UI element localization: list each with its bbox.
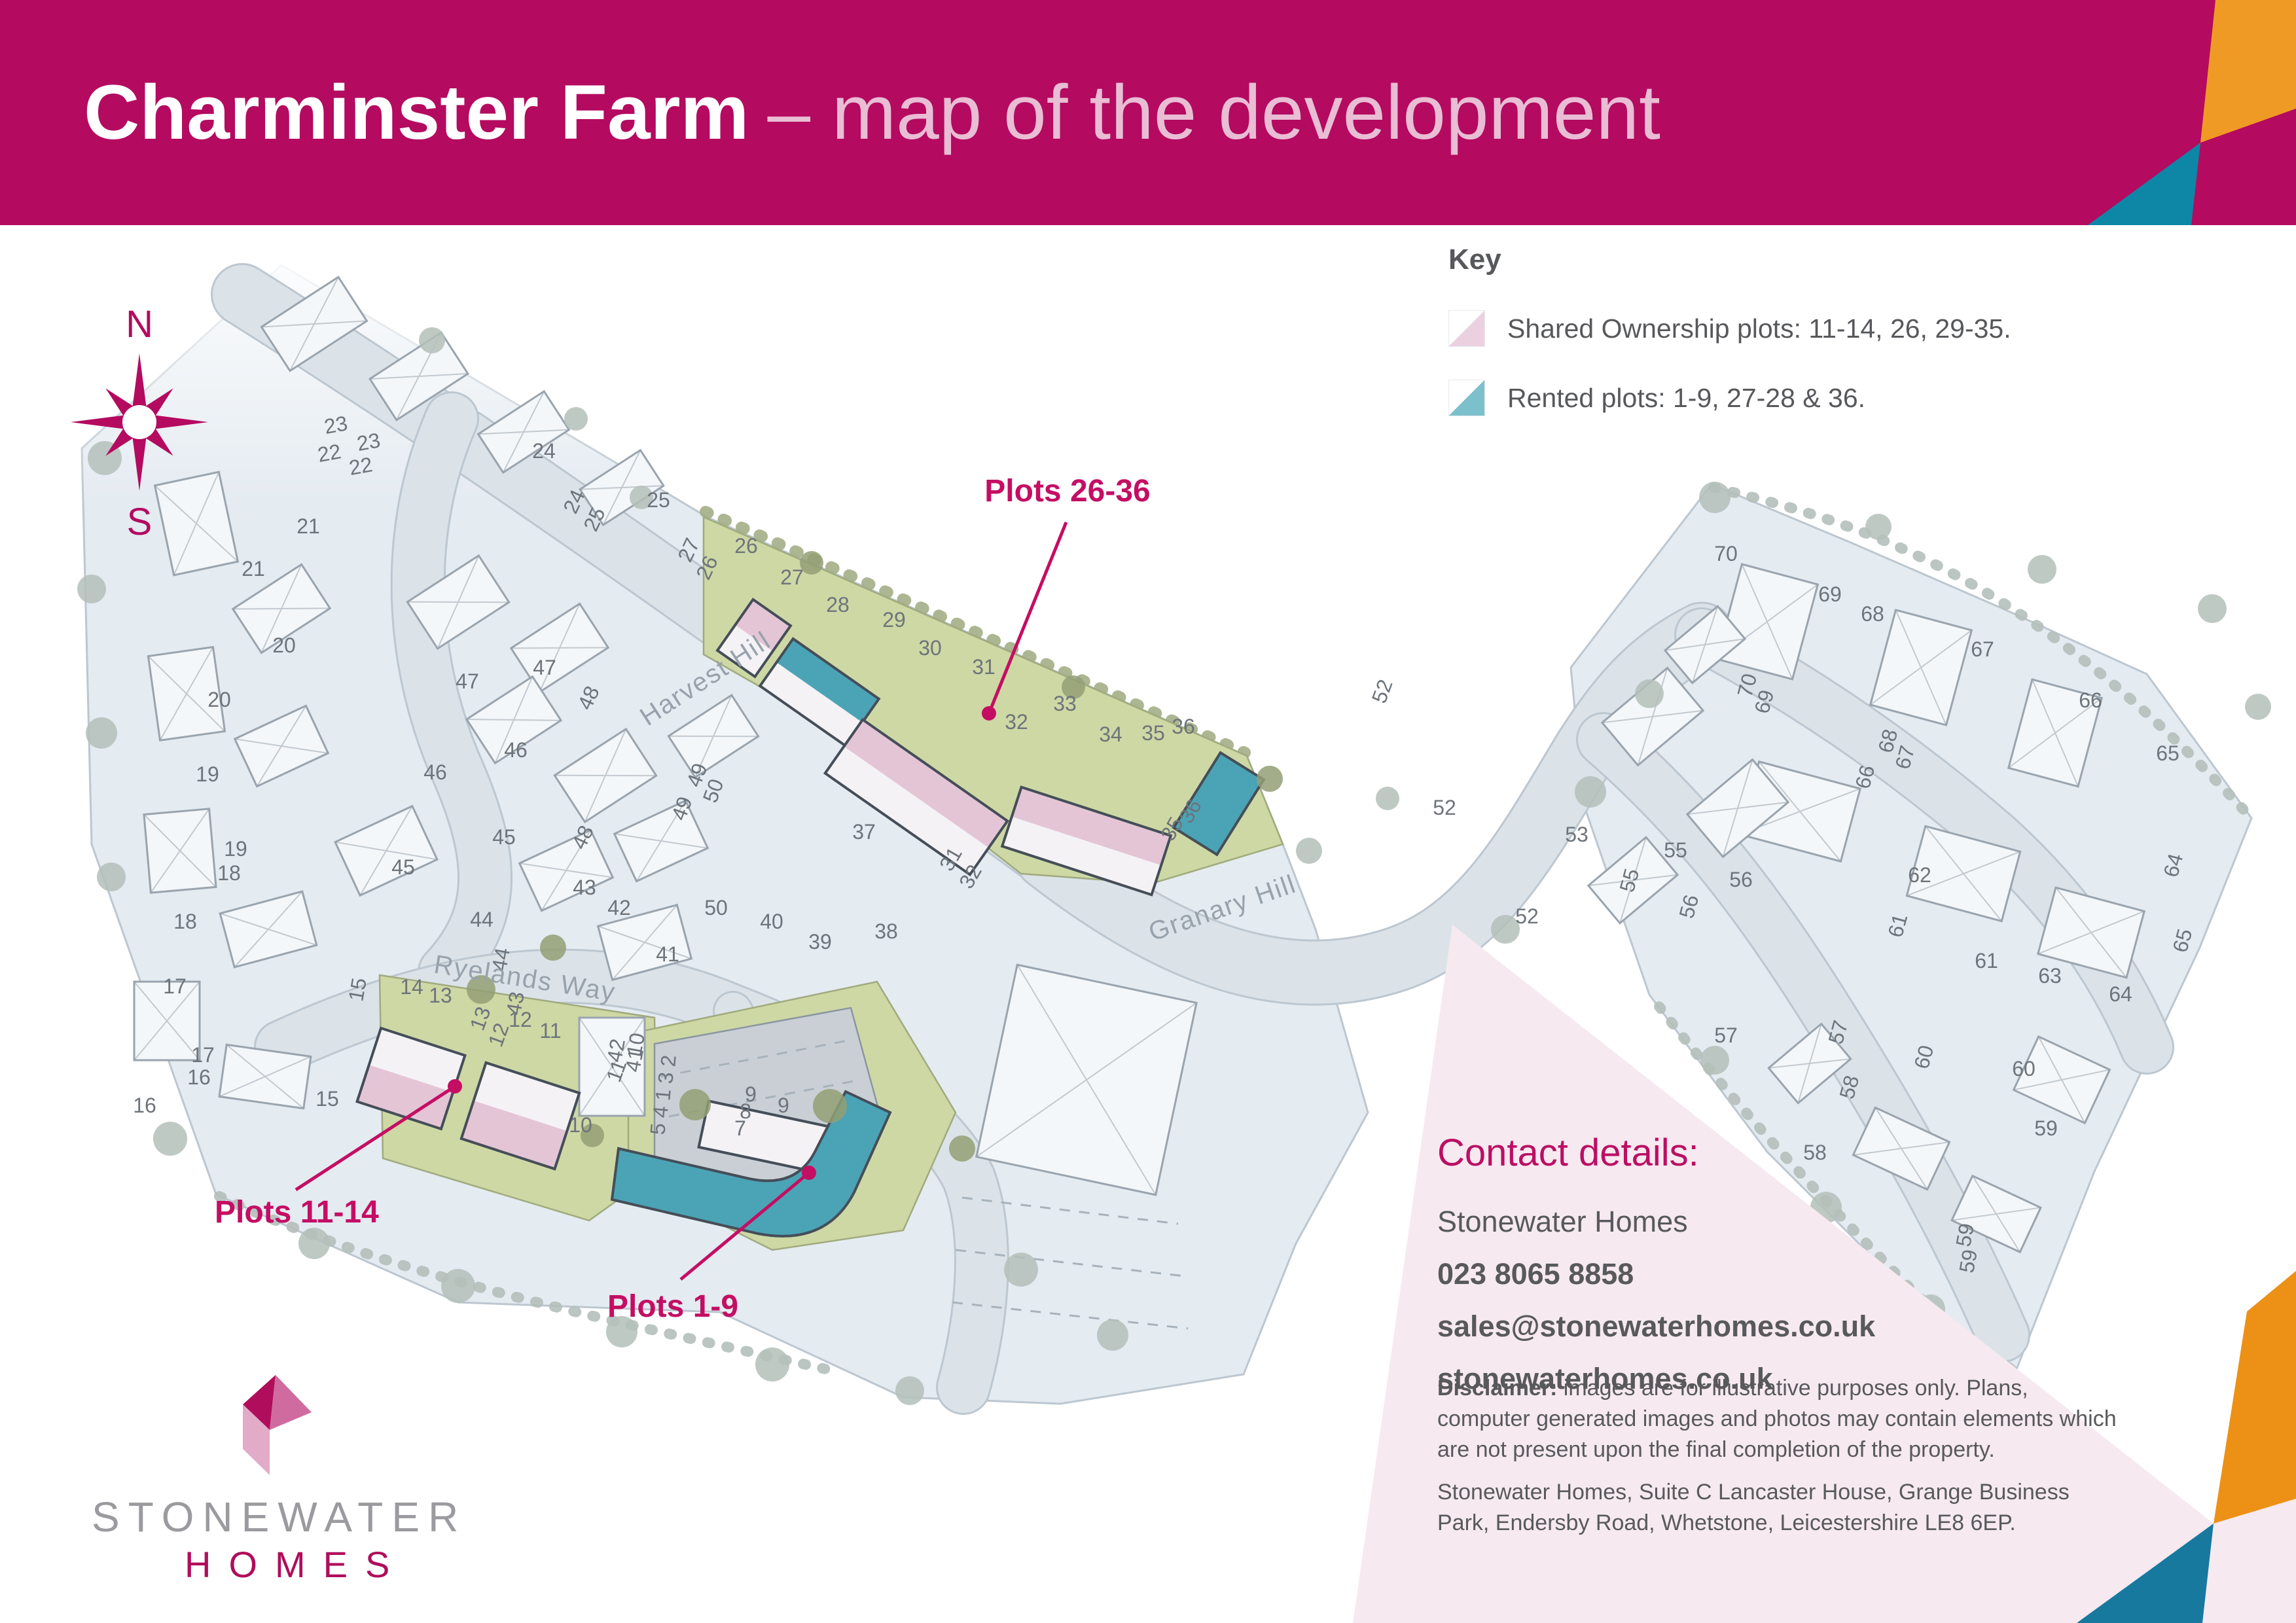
map-tree [1449, 961, 1483, 995]
building-outline [825, 720, 1008, 875]
road-casing [733, 1011, 755, 1113]
map-tree [564, 407, 588, 431]
plot-number: 24 [532, 439, 556, 463]
plot-number: 48 [567, 822, 598, 853]
building-part [461, 1101, 567, 1169]
map-tree [1257, 766, 1283, 792]
map-tree [1004, 1253, 1038, 1287]
house-footprint [235, 705, 329, 786]
hedgerow [706, 512, 1245, 753]
plot-number: 8 [740, 1099, 751, 1123]
plot-number: 2 [656, 1054, 680, 1068]
plot-number: 19 [224, 837, 247, 861]
plot-number: 48 [573, 683, 604, 713]
house-roof-lines [144, 809, 216, 893]
map-house [262, 277, 367, 370]
map-tree [1062, 675, 1085, 699]
callout-line [296, 1086, 455, 1190]
plot-number: 59 [2034, 1116, 2058, 1140]
map-house [2009, 679, 2102, 787]
house-roof-lines [1602, 668, 1703, 766]
plot-number: 5 [645, 1122, 670, 1136]
map-tree [1635, 679, 1664, 708]
plot-number: 20 [272, 633, 296, 657]
plot-number: 55 [1615, 866, 1643, 895]
disclaimer-text: Disclaimer: images are for illustrative … [1437, 1373, 2118, 1465]
house-roof-lines [615, 800, 708, 881]
page-title-bold: Charminster Farm [84, 69, 749, 156]
house-footprint [1740, 762, 1860, 861]
building-part [1174, 753, 1264, 855]
map-house [134, 982, 200, 1060]
plot-number: 28 [826, 593, 850, 616]
house-roof-lines [579, 1018, 645, 1116]
map-tree [2028, 555, 2056, 584]
plot-number: 68 [1873, 726, 1902, 755]
road-casing [1047, 635, 1702, 972]
garden-area [704, 517, 1283, 883]
house-footprint [467, 677, 561, 763]
road-casing [1702, 635, 2147, 1047]
map-tree [77, 575, 106, 603]
house-roof-lines [1768, 1024, 1850, 1103]
map-house [580, 450, 664, 525]
street-label: Granary Hill [1145, 870, 1300, 947]
house-roof-lines [148, 647, 224, 741]
road [242, 294, 1047, 857]
building-part [1012, 787, 1171, 865]
plot-number: 13 [465, 1003, 495, 1033]
plot-number: 21 [296, 514, 320, 538]
house-roof-lines [219, 1044, 311, 1108]
plot-number: 58 [1835, 1073, 1863, 1101]
map-tree [800, 551, 823, 575]
plot-number: 22 [315, 439, 342, 467]
house-roof-lines [155, 472, 238, 575]
house-roof-lines [977, 965, 1196, 1195]
plot-number: 31 [972, 655, 996, 679]
map-house [615, 800, 708, 881]
plot-number: 31 [935, 843, 967, 875]
plot-number: 23 [322, 411, 349, 438]
plot-number: 61 [1975, 949, 1998, 972]
house-roof-lines [134, 982, 200, 1060]
page-title: Charminster Farm– map of the development [0, 68, 1660, 157]
parking-courtyard [655, 1008, 880, 1207]
plot-number: 59 [1954, 1247, 1982, 1274]
house-roof-lines [335, 806, 437, 896]
map-tree [1491, 915, 1520, 944]
building-part [699, 1101, 859, 1179]
plot-number: 39 [808, 930, 832, 954]
parking-bay-lines [956, 1250, 1185, 1276]
map-house [1740, 762, 1860, 861]
plot-number: 49 [667, 793, 697, 823]
pink-triangle-right [2202, 1497, 2296, 1623]
contact-phone: 023 8065 8858 [1437, 1257, 1875, 1291]
house-footprint [579, 1018, 645, 1116]
plot-number: 9 [745, 1082, 757, 1106]
house-footprint [370, 332, 468, 420]
map-tree [467, 975, 495, 1004]
plot-number: 35 [1156, 813, 1188, 845]
building-pink [717, 599, 791, 677]
house-roof-lines [2038, 887, 2144, 978]
plot-number: 42 [602, 1037, 630, 1063]
house-roof-lines [235, 705, 329, 786]
house-roof-lines [1907, 826, 2020, 921]
plot-number: 34 [1099, 722, 1122, 746]
site-area [82, 265, 1368, 1404]
plot-number: 69 [1818, 582, 1842, 606]
building-part [1174, 753, 1264, 855]
building-part [760, 639, 879, 746]
plot-number: 52 [1367, 676, 1397, 706]
building-white [699, 1101, 859, 1179]
key-heading: Key [1448, 243, 2011, 276]
plot-number: 67 [1971, 637, 1994, 661]
contact-email-link[interactable]: sales@stonewaterhomes.co.uk [1437, 1310, 1875, 1344]
plot-number: 47 [456, 669, 479, 693]
building-outline [699, 1101, 859, 1179]
house-footprint [2038, 887, 2144, 978]
map-tree [813, 1089, 847, 1123]
house-roof-lines [598, 905, 692, 980]
house-roof-lines [262, 277, 367, 370]
plot-number: 26 [691, 552, 723, 583]
header-banner: Charminster Farm– map of the development [0, 0, 2296, 225]
plot-number: 16 [187, 1065, 211, 1089]
house-footprint [598, 905, 692, 980]
logo-mark-light [243, 1404, 270, 1475]
orange-triangle-bottom [2214, 1271, 2296, 1524]
map-tree [86, 717, 117, 749]
building-teal-plots-1-9 [612, 1092, 890, 1236]
map-tree [88, 441, 122, 475]
plot-number: 66 [1850, 762, 1879, 791]
plot-number: 29 [882, 608, 906, 632]
house-roof-lines [1588, 837, 1677, 923]
map-tree [1916, 1294, 1945, 1323]
building-outline [1174, 753, 1264, 855]
building-outline [357, 1028, 465, 1129]
map-tree [1575, 776, 1606, 808]
plot-number: 37 [852, 820, 876, 844]
building-outline [461, 1063, 579, 1169]
map-tree [1097, 1319, 1128, 1351]
map-tree [540, 935, 566, 961]
house-footprint [554, 729, 656, 822]
plot-number: 10 [569, 1113, 592, 1137]
building-pink [1002, 787, 1171, 895]
plot-number: 10 [622, 1031, 649, 1058]
map-house [219, 1044, 311, 1108]
house-footprint [668, 695, 758, 777]
plot-number: 27 [780, 565, 804, 589]
house-roof-lines [668, 695, 758, 777]
map-house [2038, 887, 2144, 978]
key-row-shared-ownership: Shared Ownership plots: 11-14, 26, 29-35… [1448, 310, 2011, 347]
map-house [1717, 564, 1818, 679]
plot-number: 61 [1883, 911, 1912, 940]
house-footprint [1871, 610, 1972, 725]
map-house [1687, 760, 1788, 857]
plot-number: 59 [1951, 1221, 1979, 1248]
house-roof-lines [233, 564, 330, 652]
house-footprint [615, 800, 708, 881]
map-house [977, 965, 1196, 1195]
plot-number: 63 [2038, 964, 2062, 988]
house-footprint [1588, 837, 1677, 923]
house-footprint [407, 556, 509, 649]
house-footprint [478, 391, 569, 473]
plot-callout-label: Plots 26-36 [984, 474, 1150, 508]
road [1047, 635, 1702, 972]
plot-number: 24 [558, 486, 590, 517]
house-footprint [148, 647, 224, 741]
map-tree [581, 1124, 604, 1147]
plot-number: 9 [778, 1094, 789, 1117]
house-footprint [219, 1044, 311, 1108]
parking-bay-lines [669, 1081, 854, 1116]
house-footprint [1717, 564, 1818, 679]
plot-number: 57 [1714, 1024, 1738, 1047]
map-house [1602, 668, 1703, 766]
plot-number: 41 [656, 942, 679, 966]
plot-number: 50 [698, 776, 728, 806]
house-footprint [220, 891, 317, 967]
map-house [220, 891, 317, 967]
plot-number: 16 [133, 1094, 156, 1117]
building-pink [461, 1063, 579, 1169]
plot-number: 44 [487, 946, 514, 972]
map-tree [606, 1316, 637, 1347]
contact-company: Stonewater Homes [1437, 1205, 1875, 1239]
map-tree [419, 327, 445, 353]
map-tree [1865, 514, 1892, 540]
logo-text-homes: HOMES [185, 1544, 407, 1585]
compass-star-icon [71, 353, 208, 491]
garden-area [380, 975, 658, 1221]
compass-north-label: N [126, 303, 153, 346]
map-house [554, 729, 656, 822]
road [281, 976, 982, 1387]
map-tree [97, 863, 126, 891]
house-footprint [977, 965, 1196, 1195]
house-roof-lines [554, 729, 656, 822]
plot-number: 14 [400, 975, 423, 999]
logo-mark-mid [270, 1375, 312, 1430]
map-house [2014, 1037, 2110, 1123]
building-part [699, 1101, 859, 1179]
house-footprint [1907, 826, 2020, 921]
house-roof-lines [1952, 1176, 2041, 1253]
map-tree [441, 1269, 475, 1303]
plot-number: 35 [1141, 721, 1165, 745]
plot-number: 27 [673, 535, 704, 565]
map-tree [153, 1122, 187, 1156]
plot-number: 66 [2079, 688, 2102, 712]
house-roof-lines [1871, 610, 1972, 725]
plot-number: 46 [423, 760, 447, 784]
plot-number: 50 [704, 896, 728, 919]
map-house [467, 677, 561, 763]
plot-number: 7 [734, 1116, 746, 1140]
map-house [1952, 1176, 2041, 1253]
map-house [1768, 1024, 1850, 1103]
callout-dot [448, 1079, 462, 1094]
plot-number: 65 [2168, 926, 2197, 955]
map-house [1665, 606, 1745, 683]
plot-number: 64 [2109, 982, 2132, 1006]
plot-number: 45 [391, 855, 415, 879]
house-roof-lines [478, 391, 569, 473]
map-house [370, 332, 468, 420]
callout-line [989, 522, 1066, 713]
map-tree [298, 1228, 330, 1259]
plot-number: 67 [1890, 743, 1919, 772]
plot-number: 33 [1053, 692, 1077, 715]
plot-number: 46 [504, 738, 528, 762]
house-roof-lines [2009, 679, 2102, 787]
plot-number: 22 [347, 452, 374, 480]
key-row-rented: Rented plots: 1-9, 27-28 & 36. [1448, 380, 2011, 416]
key-label-rented: Rented plots: 1-9, 27-28 & 36. [1507, 383, 1865, 414]
map-house [155, 472, 238, 575]
map-tree [2198, 594, 2227, 623]
plot-number: 15 [315, 1087, 339, 1111]
map-tree [755, 1347, 789, 1382]
plot-number: 19 [196, 762, 219, 786]
map-tree [1376, 787, 1399, 810]
plot-number: 60 [2012, 1057, 2036, 1080]
house-footprint [580, 450, 664, 525]
building-part [357, 1028, 465, 1129]
house-footprint [511, 603, 608, 692]
building-teal [1174, 753, 1264, 855]
building-outline [717, 599, 791, 677]
plot-number: 21 [242, 557, 265, 580]
plot-number: 49 [682, 760, 712, 790]
map-tree [1699, 482, 1731, 513]
map-key: Key Shared Ownership plots: 11-14, 26, 2… [1448, 243, 2011, 449]
compass-center [122, 405, 156, 439]
plot-number: 56 [1674, 892, 1703, 921]
street-label: Ryelands Way [432, 950, 618, 1007]
plot-number: 38 [874, 919, 898, 943]
street-label: Harvest Hill [635, 626, 776, 731]
house-footprint [1665, 606, 1745, 683]
plot-number: 11 [539, 1019, 561, 1043]
plot-number: 64 [2159, 851, 2187, 880]
building-part [844, 720, 1007, 848]
house-footprint [1602, 668, 1703, 766]
map-house [233, 564, 330, 652]
plot-number: 25 [647, 488, 670, 512]
road [733, 1011, 755, 1113]
road [418, 419, 485, 972]
plot-number: 13 [429, 984, 452, 1007]
map-house [1907, 826, 2020, 921]
plot-number: 11 [601, 1056, 631, 1085]
house-footprint [2009, 679, 2102, 787]
plot-number: 44 [470, 908, 493, 931]
callout-dot [802, 1166, 816, 1180]
map-house [235, 705, 329, 786]
logo-text-stonewater: STONEWATER [92, 1493, 467, 1541]
plot-number: 45 [492, 825, 516, 849]
key-swatch-rented [1448, 380, 1485, 416]
building-part [461, 1063, 579, 1169]
plot-number: 68 [1861, 602, 1884, 626]
plot-number: 70 [1732, 671, 1761, 700]
map-house [579, 1018, 645, 1116]
map-house [598, 905, 692, 980]
house-footprint [2014, 1037, 2110, 1123]
plot-number: 4 [648, 1105, 672, 1119]
house-roof-lines [467, 677, 561, 763]
house-roof-lines [1687, 760, 1788, 857]
road [1702, 635, 2147, 1047]
map-house [520, 830, 613, 910]
plot-number: 57 [1823, 1018, 1852, 1046]
plot-number: 18 [217, 861, 241, 885]
house-roof-lines [2014, 1037, 2110, 1123]
map-tree [949, 1135, 975, 1162]
parking-bay-lines [962, 1198, 1178, 1224]
plot-number: 62 [1908, 863, 1931, 887]
house-footprint [1952, 1176, 2041, 1253]
key-label-shared-ownership: Shared Ownership plots: 11-14, 26, 29-35… [1507, 313, 2011, 344]
map-house [407, 556, 509, 649]
house-footprint [144, 809, 216, 893]
house-footprint [1768, 1024, 1850, 1103]
plot-number: 65 [2156, 741, 2179, 765]
building-part [735, 599, 791, 651]
map-tree [1700, 1046, 1729, 1075]
house-roof-lines [407, 556, 509, 649]
map-house [511, 603, 608, 692]
disclaimer-address: Stonewater Homes, Suite C Lancaster Hous… [1437, 1477, 2118, 1539]
callout-line [681, 1173, 809, 1279]
hedgerow [1713, 488, 2248, 815]
plot-number: 26 [734, 534, 758, 558]
building-part [357, 1065, 454, 1129]
house-roof-lines [580, 450, 664, 525]
logo-mark-dark [243, 1375, 276, 1430]
map-tree [630, 486, 653, 509]
house-footprint [134, 982, 200, 1060]
building-teal [760, 639, 879, 746]
house-footprint [233, 564, 330, 652]
house-roof-lines [1740, 762, 1860, 861]
map-tree [895, 1376, 924, 1405]
house-footprint [1687, 760, 1788, 857]
plot-number: 60 [1909, 1043, 1938, 1071]
map-house [668, 695, 758, 777]
plot-number: 12 [484, 1020, 514, 1050]
stonewater-logo: STONEWATER HOMES [92, 1375, 467, 1585]
plot-number: 1 [651, 1088, 675, 1102]
plot-number: 32 [1005, 710, 1028, 734]
house-footprint [335, 806, 437, 896]
road-casing [281, 976, 982, 1387]
plot-number: 12 [509, 1008, 532, 1031]
map-house [1588, 837, 1677, 923]
hedgerow [219, 1196, 834, 1371]
plot-number: 18 [173, 910, 197, 933]
house-roof-lines [220, 891, 317, 967]
